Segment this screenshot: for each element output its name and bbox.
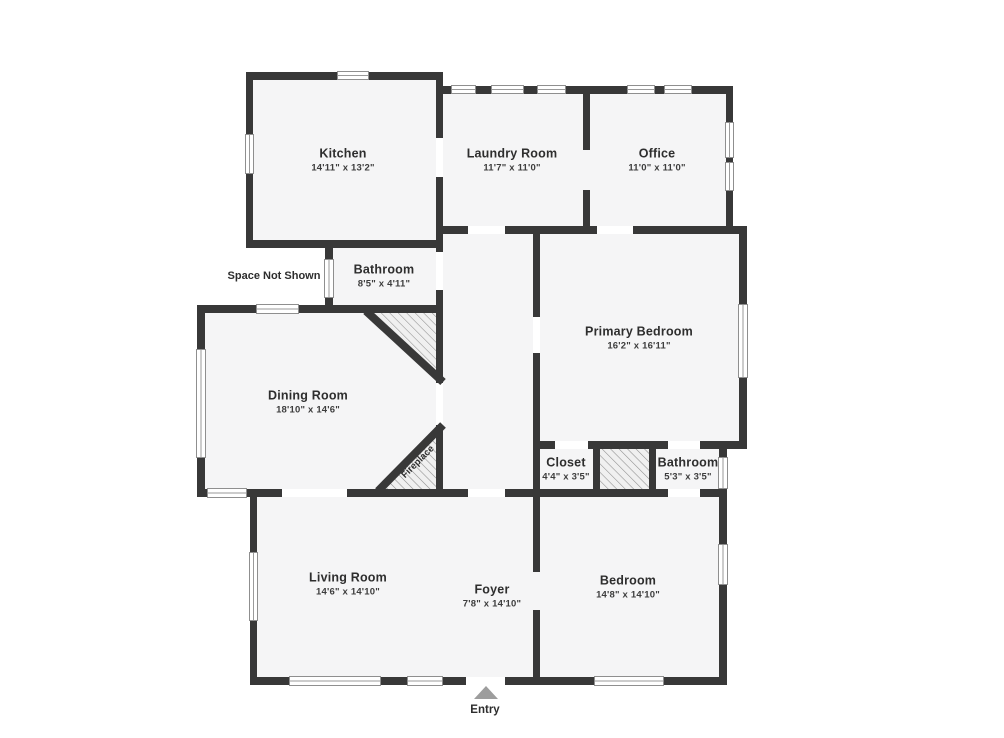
window — [718, 457, 728, 489]
wall-segment — [505, 489, 668, 497]
wall-segment — [655, 86, 664, 94]
room-area — [540, 234, 739, 441]
wall-segment — [436, 86, 451, 94]
wall-segment — [533, 234, 540, 317]
wall-segment — [250, 620, 257, 685]
window — [207, 488, 247, 498]
wall-segment — [436, 177, 443, 247]
window — [718, 544, 728, 585]
window — [491, 85, 524, 94]
wall-segment — [533, 441, 555, 449]
wall-segment — [633, 226, 747, 234]
window — [627, 85, 655, 94]
wall-segment — [298, 305, 443, 313]
wall-segment — [369, 72, 443, 80]
window — [725, 162, 734, 191]
wall-segment — [325, 240, 333, 260]
wall-segment — [533, 610, 540, 685]
floor-plan: Kitchen 14'11" x 13'2" Laundry Room 11'7… — [0, 0, 1004, 738]
window — [664, 85, 692, 94]
room-area — [333, 247, 436, 305]
wall-segment — [436, 72, 443, 138]
wall-segment — [347, 489, 468, 497]
wall-segment — [436, 425, 443, 497]
window — [196, 349, 206, 458]
room-area — [443, 234, 533, 489]
wall-segment — [739, 377, 747, 449]
wall-segment — [476, 86, 491, 94]
wall-segment — [246, 173, 253, 247]
window — [738, 304, 748, 378]
wall-segment — [250, 489, 257, 553]
window — [245, 134, 254, 174]
wall-segment — [436, 247, 443, 252]
wall-segment — [700, 489, 727, 497]
wall-segment — [246, 72, 338, 80]
wall-segment — [436, 226, 468, 234]
window — [337, 71, 369, 80]
wall-segment — [524, 86, 537, 94]
wall-segment — [505, 677, 595, 685]
room-area — [540, 449, 719, 489]
room-area — [257, 497, 719, 677]
wall-segment — [583, 94, 590, 150]
wall-segment — [381, 677, 408, 685]
wall-segment — [739, 226, 747, 305]
window — [289, 676, 381, 686]
wall-segment — [197, 305, 257, 313]
wall-segment — [250, 677, 290, 685]
wall-segment — [726, 86, 733, 123]
window — [594, 676, 664, 686]
window — [725, 122, 734, 158]
wall-segment — [197, 305, 205, 350]
wall-segment — [246, 240, 443, 248]
wall-segment — [583, 190, 590, 226]
window — [537, 85, 566, 94]
window — [451, 85, 476, 94]
room-area — [205, 313, 436, 489]
window — [249, 552, 258, 621]
room-area — [253, 80, 436, 240]
window — [256, 304, 299, 314]
wall-segment — [533, 497, 540, 572]
wall-segment — [649, 449, 656, 489]
wall-segment — [566, 86, 627, 94]
wall-segment — [719, 584, 727, 685]
wall-segment — [436, 313, 443, 383]
wall-segment — [246, 72, 253, 135]
wall-segment — [719, 443, 727, 457]
wall-segment — [505, 226, 597, 234]
wall-segment — [443, 677, 466, 685]
entry-label: Entry — [470, 704, 499, 716]
entry-arrow-icon — [474, 686, 498, 699]
wall-segment — [593, 449, 600, 489]
wall-segment — [664, 677, 727, 685]
wall-segment — [588, 441, 668, 449]
space-not-shown-label: Space Not Shown — [228, 270, 321, 282]
window — [324, 259, 334, 298]
wall-segment — [533, 353, 540, 497]
window — [407, 676, 443, 686]
